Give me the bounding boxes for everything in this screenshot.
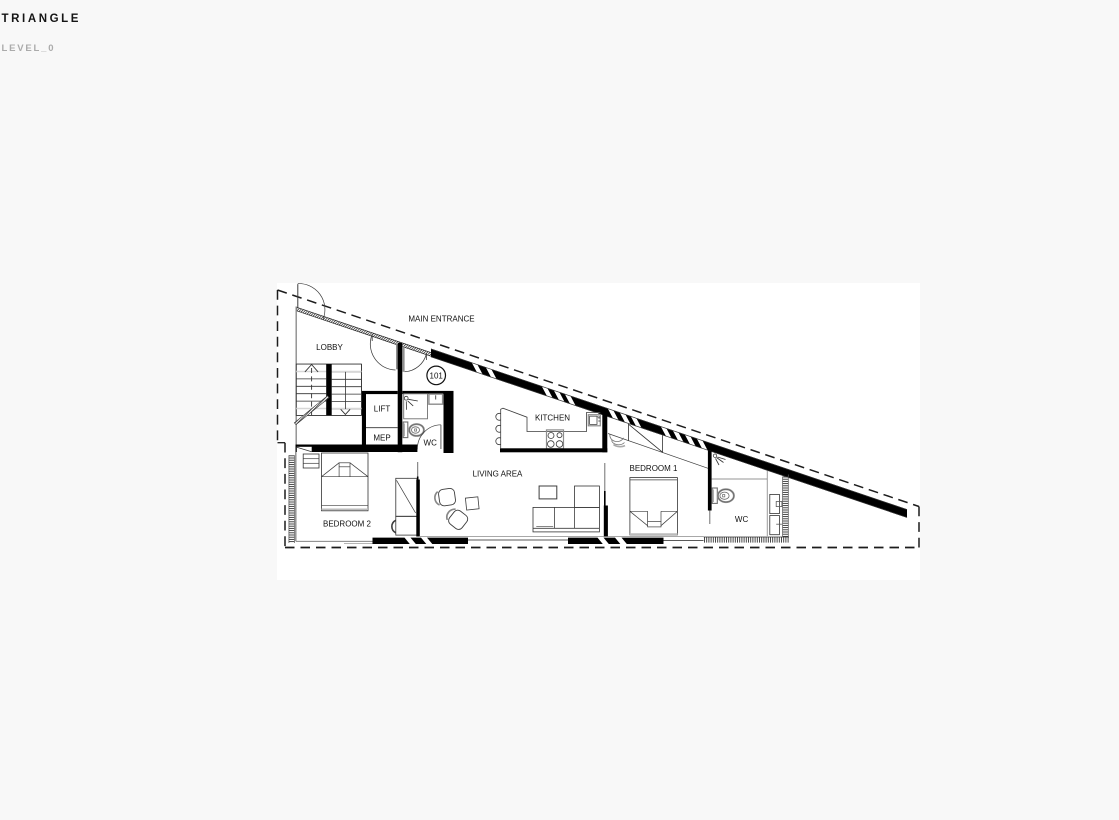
svg-text:KITCHEN: KITCHEN <box>535 414 570 423</box>
svg-text:LEVEL_0: LEVEL_0 <box>2 43 56 54</box>
svg-text:BEDROOM 2: BEDROOM 2 <box>323 520 372 529</box>
svg-text:MEP: MEP <box>373 434 390 443</box>
svg-text:LIFT: LIFT <box>374 405 391 414</box>
svg-text:WC: WC <box>424 439 438 448</box>
svg-text:MAIN ENTRANCE: MAIN ENTRANCE <box>408 315 474 324</box>
svg-text:LIVING AREA: LIVING AREA <box>473 469 523 478</box>
svg-text:WC: WC <box>735 515 749 524</box>
svg-text:LOBBY: LOBBY <box>316 343 343 352</box>
svg-text:101: 101 <box>430 371 444 380</box>
svg-text:TRIANGLE: TRIANGLE <box>2 13 82 25</box>
svg-text:BEDROOM 1: BEDROOM 1 <box>629 464 678 473</box>
